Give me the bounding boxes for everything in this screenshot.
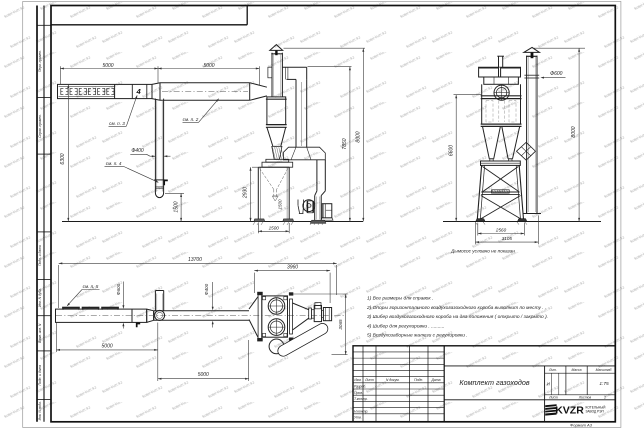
svg-text:6600: 6600 [448, 145, 454, 156]
svg-text:Масштаб: Масштаб [596, 368, 612, 372]
svg-text:2560: 2560 [495, 227, 507, 232]
svg-text:Пров.: Пров. [354, 391, 363, 395]
svg-text:4: 4 [135, 87, 141, 96]
svg-text:2930: 2930 [243, 187, 249, 199]
svg-text:3065: 3065 [338, 319, 343, 330]
svg-text:Взам. инв. N: Взам. инв. N [38, 323, 42, 343]
svg-text:1) Все размеры для справок .: 1) Все размеры для справок . [367, 296, 433, 302]
svg-text:Подп. и дата: Подп. и дата [38, 245, 42, 266]
svg-text:см. п. 3: см. п. 3 [109, 121, 125, 126]
svg-text:Лист: Лист [548, 396, 558, 400]
svg-text:Масса: Масса [571, 368, 581, 372]
svg-text:3) Шибер воздухогазоходного к: 3) Шибер воздухогазоходного короба на дв… [367, 314, 548, 320]
svg-text:ЗАВОД РЭП: ЗАВОД РЭП [586, 409, 605, 413]
svg-text:8000: 8000 [356, 131, 362, 142]
svg-text:Н.контр.: Н.контр. [354, 409, 368, 413]
svg-text:Дымосос условно не показан: Дымосос условно не показан [450, 248, 515, 253]
svg-text:Подп.: Подп. [414, 378, 423, 382]
svg-text:Перв. примен.: Перв. примен. [38, 50, 42, 72]
svg-text:Листов: Листов [578, 396, 592, 400]
svg-text:5000: 5000 [203, 63, 214, 69]
svg-text:5) Воздухозаборные жалюзи с р: 5) Воздухозаборные жалюзи с регулировки … [367, 333, 468, 339]
svg-text:KVZR: KVZR [555, 405, 584, 417]
svg-text:1500: 1500 [269, 225, 280, 230]
svg-text:Ф400: Ф400 [204, 283, 209, 295]
svg-text:8000: 8000 [571, 126, 577, 137]
svg-text:5000: 5000 [102, 343, 113, 349]
svg-text:Изм.: Изм. [354, 378, 361, 382]
svg-text:1500: 1500 [173, 201, 179, 212]
svg-text:см. п. 2: см. п. 2 [183, 117, 199, 122]
svg-text:Ф400: Ф400 [131, 148, 144, 154]
svg-text:7850: 7850 [342, 138, 348, 149]
svg-text:Лит.: Лит. [548, 368, 557, 372]
svg-text:6300: 6300 [60, 153, 66, 164]
svg-text:см. п. 5: см. п. 5 [83, 284, 99, 289]
svg-text:5000: 5000 [198, 372, 209, 378]
svg-text:13700: 13700 [188, 257, 202, 263]
svg-text:Ф600: Ф600 [116, 283, 121, 295]
svg-text:Утв.: Утв. [354, 416, 362, 420]
svg-text:4) Шибер для регулировки . ..: 4) Шибер для регулировки . .......... [367, 323, 445, 329]
svg-text:Инв. N дубл.: Инв. N дубл. [38, 288, 42, 307]
svg-text:Справ. примен.: Справ. примен. [38, 114, 42, 138]
svg-text:Ф600: Ф600 [550, 71, 563, 77]
svg-text:N докум.: N докум. [386, 378, 400, 382]
svg-text:3960: 3960 [287, 264, 298, 270]
svg-text:Разраб.: Разраб. [354, 385, 366, 389]
svg-text:Инв. N подл.: Инв. N подл. [38, 401, 42, 420]
svg-text:2) Опоры горизонтального возд: 2) Опоры горизонтального воздухогазоходн… [366, 305, 546, 311]
svg-text:1500: 1500 [278, 199, 283, 210]
svg-text:Формат А3: Формат А3 [570, 422, 593, 427]
svg-text:1:75: 1:75 [599, 381, 609, 387]
svg-text:Комплект газоходов: Комплект газоходов [459, 378, 530, 387]
svg-text:1: 1 [604, 396, 606, 400]
svg-text:см. п. 4: см. п. 4 [106, 161, 122, 166]
svg-text:3105: 3105 [502, 236, 513, 241]
svg-text:Дата: Дата [431, 378, 441, 382]
svg-text:5000: 5000 [102, 63, 113, 69]
svg-text:Т.контр.: Т.контр. [354, 397, 368, 401]
svg-text:Лист: Лист [364, 378, 374, 382]
svg-text:Подп. и дата: Подп. и дата [38, 365, 42, 386]
